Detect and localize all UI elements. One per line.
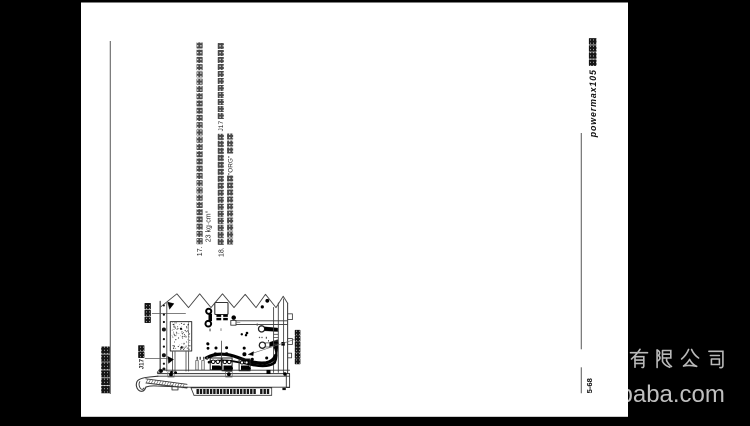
svg-text:17.: 17. bbox=[197, 246, 204, 256]
svg-text:5-68: 5-68 bbox=[585, 378, 594, 393]
svg-text:J17: J17 bbox=[218, 121, 225, 132]
svg-text:23 kg·cm°: 23 kg·cm° bbox=[205, 210, 213, 242]
svg-text:18.: 18. bbox=[218, 247, 225, 257]
svg-text:baba.com: baba.com bbox=[620, 381, 725, 408]
svg-text:powermax105: powermax105 bbox=[588, 69, 598, 138]
svg-text:J17: J17 bbox=[139, 358, 146, 369]
svg-text:"ORG": "ORG" bbox=[227, 156, 234, 175]
